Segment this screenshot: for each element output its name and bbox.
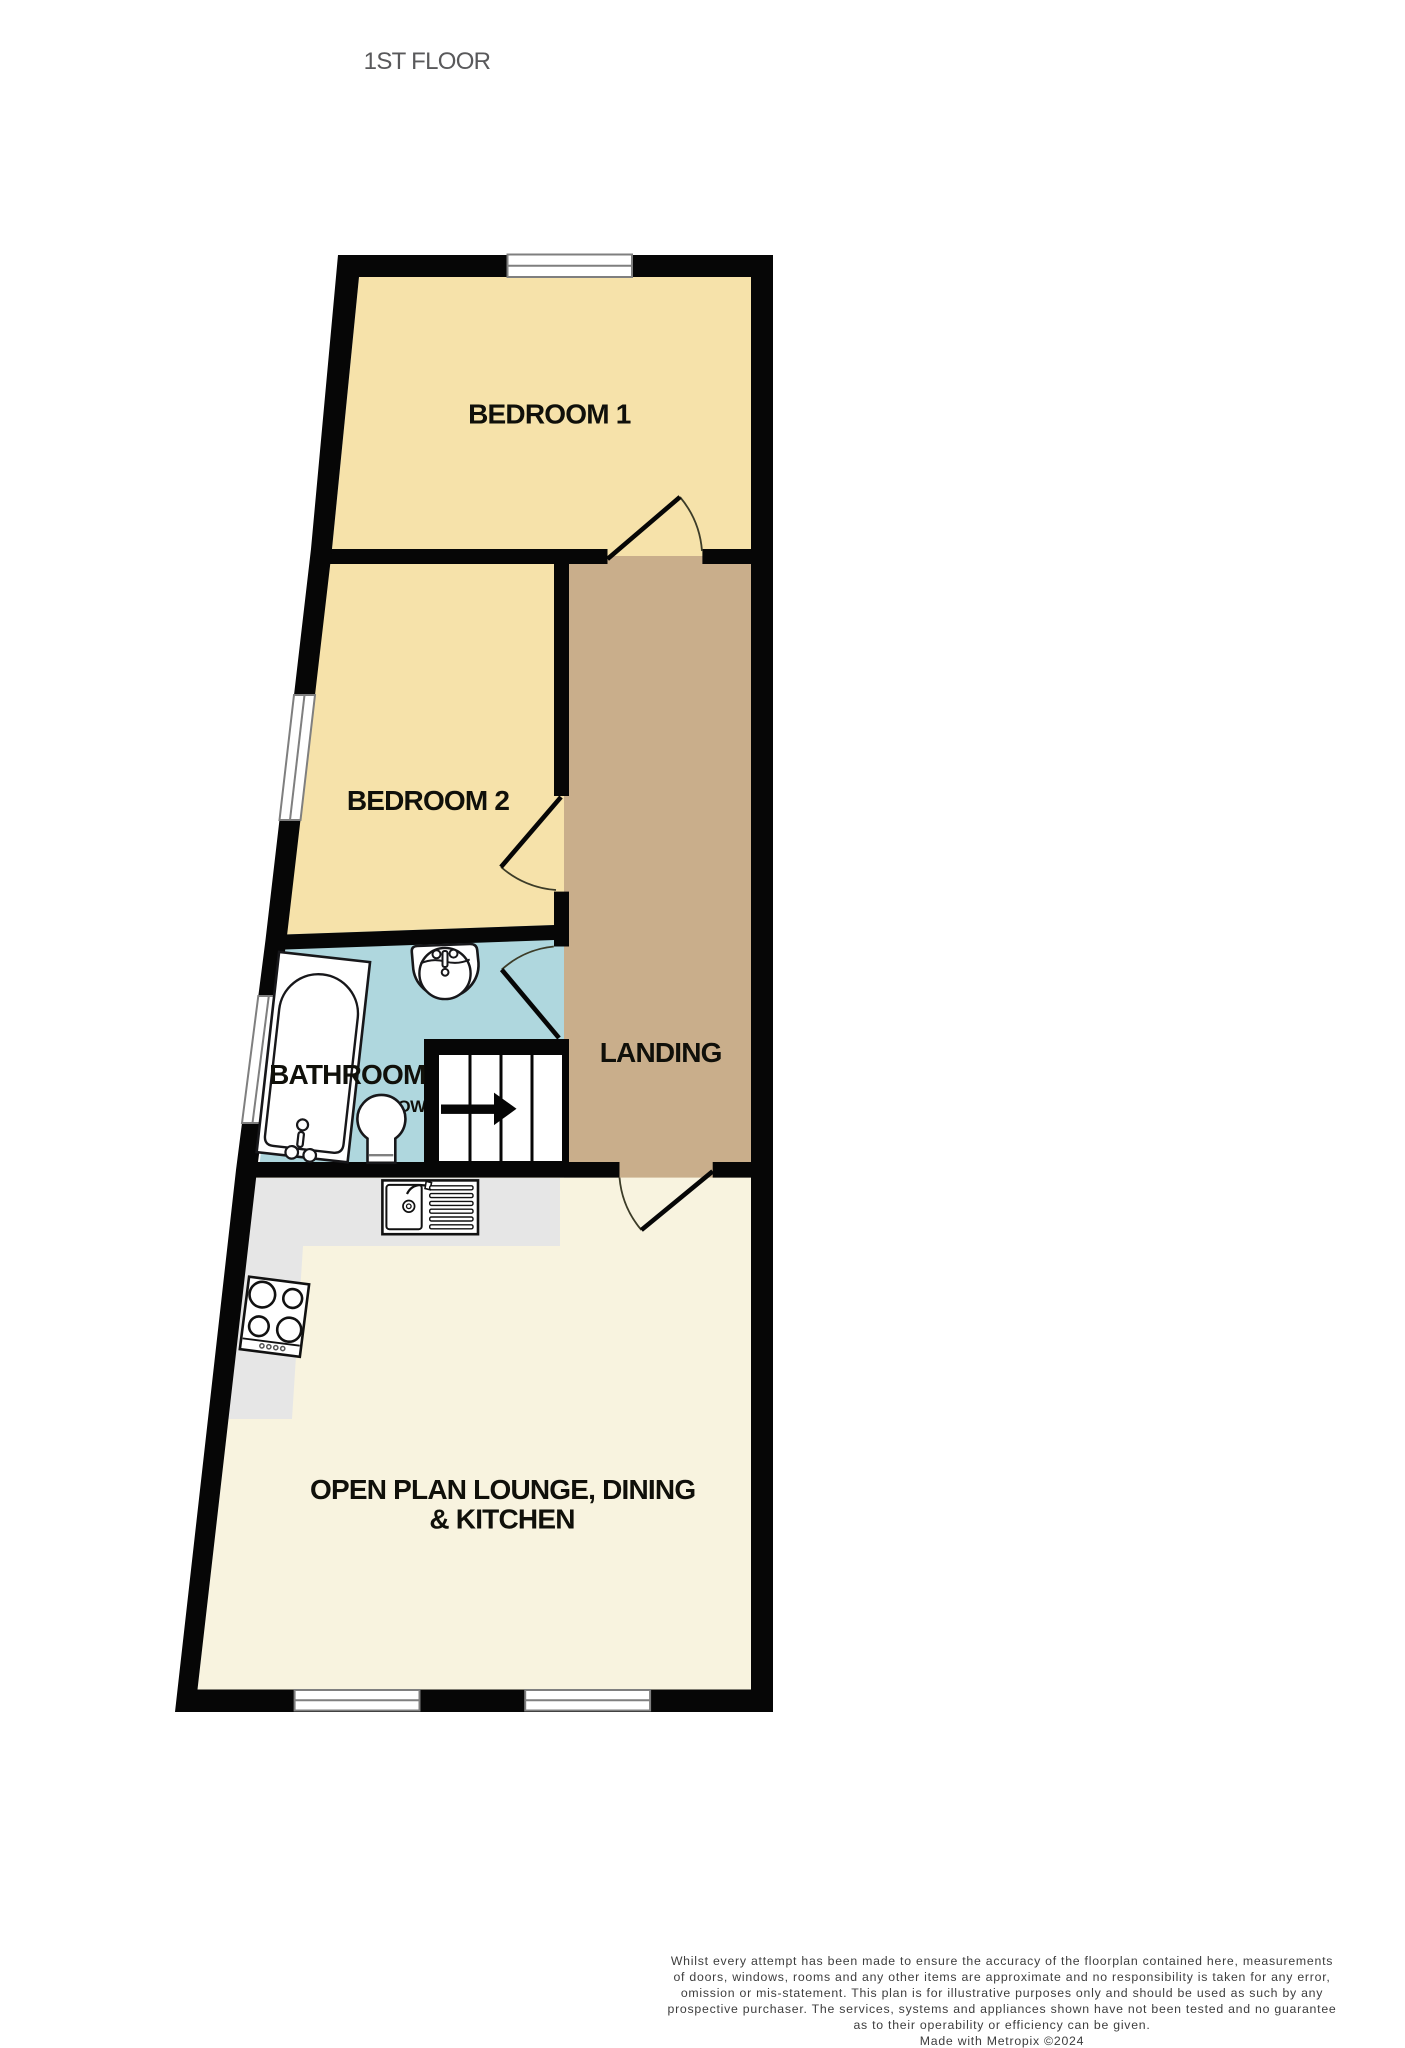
svg-text:BEDROOM 1: BEDROOM 1 bbox=[468, 399, 631, 430]
svg-text:& KITCHEN: & KITCHEN bbox=[429, 1504, 574, 1535]
svg-text:LANDING: LANDING bbox=[600, 1037, 722, 1068]
svg-text:1ST FLOOR: 1ST FLOOR bbox=[364, 48, 491, 75]
svg-text:OPEN PLAN LOUNGE, DINING: OPEN PLAN LOUNGE, DINING bbox=[310, 1474, 695, 1505]
svg-text:BATHROOM: BATHROOM bbox=[269, 1059, 425, 1090]
svg-text:BEDROOM 2: BEDROOM 2 bbox=[347, 785, 510, 816]
